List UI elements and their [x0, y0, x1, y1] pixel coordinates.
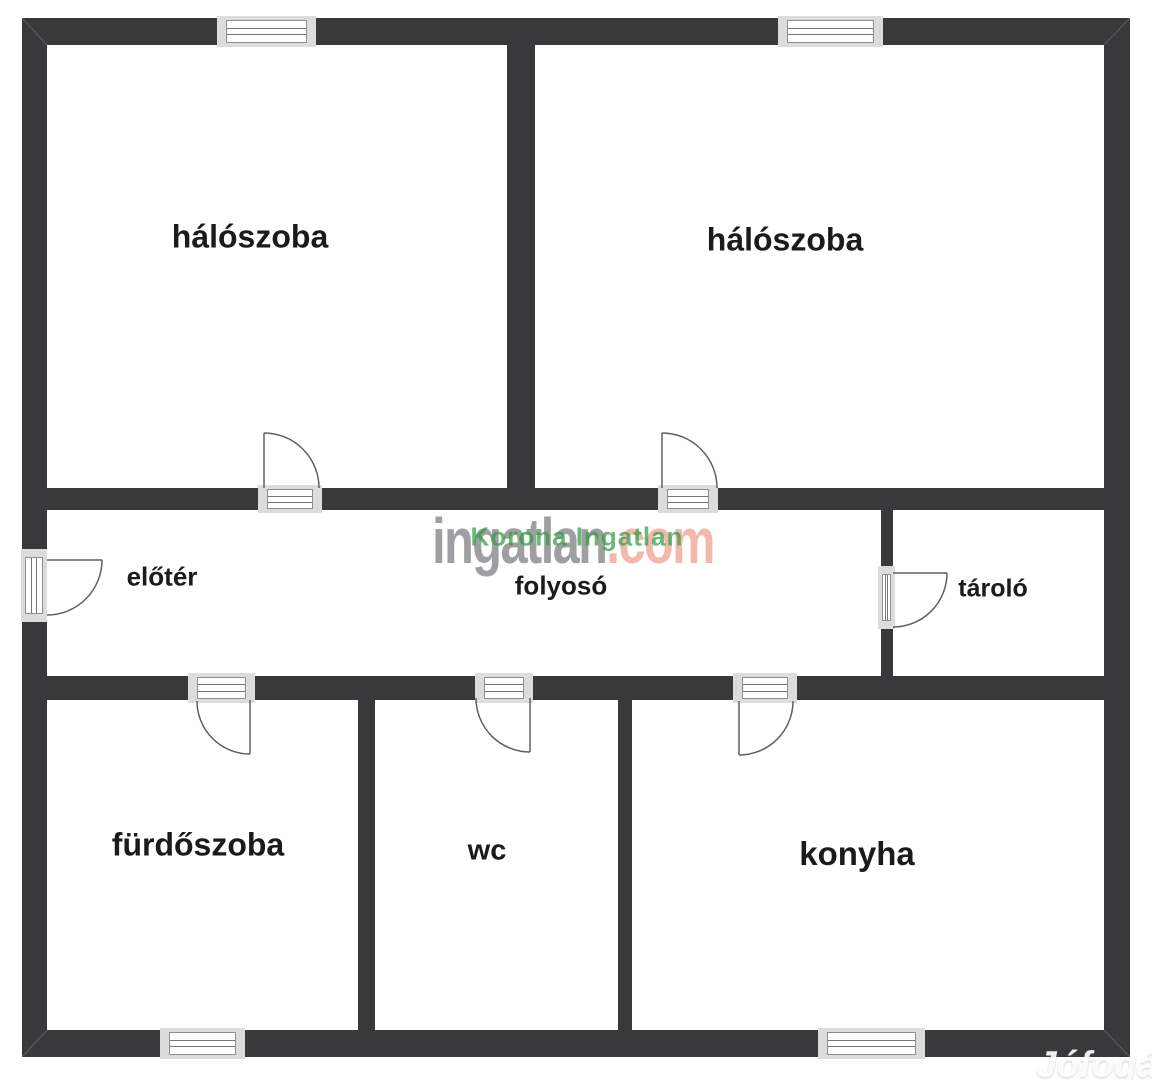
door-arc-bathroom [197, 701, 250, 754]
door-arc-bedroom1 [264, 433, 319, 488]
door-arc-entry [47, 560, 102, 615]
room-label-haloszoba-1: hálószoba [172, 219, 328, 256]
door-arc-kitchen [739, 701, 793, 755]
door-arc-storage [893, 573, 947, 627]
watermark-korona-ingatlan: Korona Ingatlan [471, 522, 684, 553]
corner-seam-bottom-left [22, 1030, 47, 1057]
room-label-konyha: konyha [799, 835, 915, 873]
room-label-tarolo: tároló [958, 575, 1027, 604]
room-label-wc: wc [468, 835, 507, 868]
door-arc-bedroom2 [662, 433, 717, 488]
floor-plan: hálószoba hálószoba előtér folyosó tárol… [0, 0, 1152, 1080]
room-label-eloter: előtér [127, 562, 198, 593]
room-label-haloszoba-2: hálószoba [707, 222, 863, 259]
door-arc-wc [476, 698, 530, 752]
corner-seam-top-right [1104, 18, 1130, 45]
watermark-jofogas: Jófogás [1036, 1044, 1152, 1080]
room-label-furdoszoba: fürdőszoba [112, 827, 284, 864]
corner-seam-top-left [22, 18, 47, 45]
